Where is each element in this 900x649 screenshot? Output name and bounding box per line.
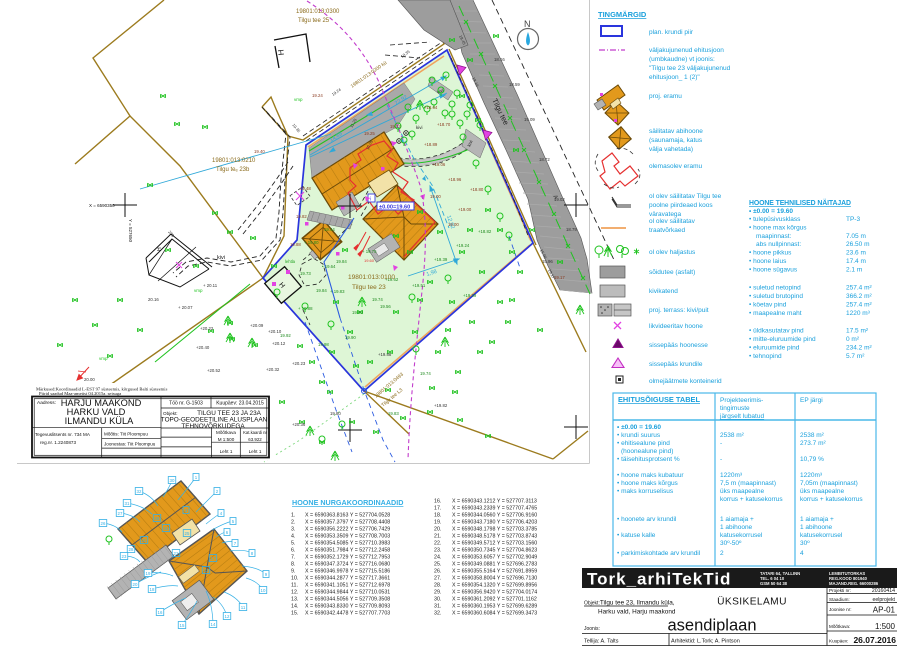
svg-text:ol olev säilitatav: ol olev säilitatav bbox=[649, 218, 696, 225]
svg-text:Tilgu tee 23: Tilgu tee 23 bbox=[352, 284, 386, 291]
svg-text:19.74: 19.74 bbox=[372, 297, 383, 302]
svg-text:16: 16 bbox=[158, 610, 163, 615]
svg-text:+18.82: +18.82 bbox=[478, 229, 492, 234]
svg-text:15.: 15. bbox=[291, 611, 298, 617]
svg-text:• ehitisealune pind: • ehitisealune pind bbox=[617, 440, 670, 447]
svg-text:29: 29 bbox=[155, 516, 160, 521]
svg-text:+19.24: +19.24 bbox=[456, 243, 470, 248]
svg-text:1220m³: 1220m³ bbox=[800, 472, 823, 479]
svg-text:26.50 m: 26.50 m bbox=[846, 241, 870, 248]
svg-text:31: 31 bbox=[125, 501, 130, 506]
svg-text:7.: 7. bbox=[291, 555, 295, 561]
svg-text:X = 6590342.4478 Y = 527707.7: X = 6590342.4478 Y = 527707.7703 bbox=[305, 611, 390, 617]
svg-text:2.: 2. bbox=[291, 520, 295, 526]
svg-text:2538 m²: 2538 m² bbox=[720, 432, 745, 439]
svg-text:• hoonete arv krundil: • hoonete arv krundil bbox=[617, 516, 677, 523]
svg-text:X = 6590349.0881 Y = 527696.2: X = 6590349.0881 Y = 527696.2783 bbox=[452, 562, 537, 568]
svg-text:Tellija: A. Talts: Tellija: A. Talts bbox=[584, 639, 619, 645]
svg-text:20160414: 20160414 bbox=[872, 588, 895, 594]
svg-text:asendiplaan: asendiplaan bbox=[668, 617, 757, 635]
svg-text:vmp: vmp bbox=[294, 97, 303, 102]
svg-text:19.80: 19.80 bbox=[330, 411, 341, 416]
svg-text:2: 2 bbox=[720, 550, 724, 557]
svg-text:+18.64: +18.64 bbox=[424, 105, 438, 110]
svg-text:abs nullpinnast:: abs nullpinnast: bbox=[756, 241, 801, 248]
svg-text:ÜKSIKELAMU: ÜKSIKELAMU bbox=[717, 596, 787, 608]
svg-text:+19.39: +19.39 bbox=[434, 257, 448, 262]
svg-text:12.: 12. bbox=[291, 590, 298, 596]
svg-text:+ 19.75: + 19.75 bbox=[362, 249, 377, 254]
svg-text:19: 19 bbox=[146, 571, 151, 576]
svg-text:2538 m²: 2538 m² bbox=[800, 432, 825, 439]
svg-text:X = 6590346.9978 Y = 527715.5: X = 6590346.9978 Y = 527715.5186 bbox=[305, 569, 390, 575]
svg-text:X = 6590355.5164 Y = 527691.8: X = 6590355.5164 Y = 527691.8959 bbox=[452, 569, 537, 575]
svg-text:X = 6590352.1729 Y = 527712.7: X = 6590352.1729 Y = 527712.7953 bbox=[305, 555, 390, 561]
svg-text:väravatega: väravatega bbox=[649, 211, 682, 218]
svg-text:+20.40: +20.40 bbox=[196, 345, 210, 350]
svg-text:EP järgi: EP järgi bbox=[800, 397, 823, 404]
svg-text:katusekorrusel: katusekorrusel bbox=[720, 532, 763, 539]
svg-text:järgselt lubatud: järgselt lubatud bbox=[719, 413, 764, 420]
svg-text:X = 6590344.9844 Y = 527710.0: X = 6590344.9844 Y = 527710.0531 bbox=[305, 590, 390, 596]
svg-text:TP-3: TP-3 bbox=[846, 216, 860, 223]
svg-text:19.60: 19.60 bbox=[364, 258, 375, 263]
svg-text:5.7 m²: 5.7 m² bbox=[846, 353, 865, 360]
svg-text:19.: 19. bbox=[434, 520, 441, 526]
svg-text:Objekt:Tilgu tee 23, Ilmandu k: Objekt:Tilgu tee 23, Ilmandu küla, bbox=[584, 600, 675, 607]
svg-text:7,5 m (maapinnast): 7,5 m (maapinnast) bbox=[720, 480, 776, 487]
svg-text:30º-50º: 30º-50º bbox=[720, 540, 742, 547]
svg-text:10,79 %: 10,79 % bbox=[800, 456, 824, 463]
svg-text:19.35: 19.35 bbox=[291, 122, 302, 133]
svg-text:+ 20.11: + 20.11 bbox=[203, 283, 218, 288]
svg-text:X = 6590344.0560 Y = 527706.9: X = 6590344.0560 Y = 527706.9160 bbox=[452, 513, 537, 519]
svg-text:63.922: 63.922 bbox=[248, 437, 262, 442]
svg-text:X = 6590360.1953 Y = 527699.6: X = 6590360.1953 Y = 527699.6289 bbox=[452, 604, 537, 610]
svg-text:+19.00: +19.00 bbox=[458, 207, 472, 212]
svg-text:-: - bbox=[720, 440, 722, 447]
svg-text:Objekt:: Objekt: bbox=[163, 411, 178, 416]
svg-text:14.: 14. bbox=[291, 604, 298, 610]
svg-text:Aadress:: Aadress: bbox=[37, 400, 56, 406]
svg-text:6.: 6. bbox=[291, 548, 295, 554]
svg-text:27.: 27. bbox=[434, 576, 441, 582]
svg-text:Joonestas: Tiit Ploompuu: Joonestas: Tiit Ploompuu bbox=[104, 441, 156, 446]
svg-text:+20.12: +20.12 bbox=[272, 341, 286, 346]
svg-text:korrus + katusekorrus: korrus + katusekorrus bbox=[800, 496, 863, 503]
svg-text:+18.96: +18.96 bbox=[448, 177, 462, 182]
svg-text:19801:013:0300: 19801:013:0300 bbox=[296, 9, 340, 15]
svg-text:X = 6590357.3797 Y = 527708.4: X = 6590357.3797 Y = 527708.4408 bbox=[305, 520, 390, 526]
svg-text:välja vahetada): välja vahetada) bbox=[649, 146, 693, 153]
svg-text:X = 6590350.7345 Y = 527704.8: X = 6590350.7345 Y = 527704.8623 bbox=[452, 548, 537, 554]
svg-text:23: 23 bbox=[122, 554, 127, 559]
svg-text:vmp: vmp bbox=[99, 356, 108, 361]
svg-text:Tork_arhiTekTid: Tork_arhiTekTid bbox=[587, 570, 731, 589]
svg-text:1 aiamaja +: 1 aiamaja + bbox=[720, 516, 754, 523]
svg-text:X = 6590350: X = 6590350 bbox=[89, 203, 115, 208]
svg-text:"Tilgu tee 23 väljakujunenud: "Tilgu tee 23 väljakujunenud bbox=[649, 65, 731, 72]
svg-text:17.4 m: 17.4 m bbox=[846, 258, 866, 265]
svg-text:+ 19.80: + 19.80 bbox=[304, 240, 319, 245]
svg-text:±0.00=19.60: ±0.00=19.60 bbox=[379, 204, 410, 210]
svg-text:katusekorrusel: katusekorrusel bbox=[800, 532, 843, 539]
svg-text:X = 6590343.1212 Y = 527707.3: X = 6590343.1212 Y = 527707.3113 bbox=[452, 499, 537, 505]
svg-text:23.: 23. bbox=[434, 548, 441, 554]
svg-text:üks maapealne: üks maapealne bbox=[720, 488, 764, 495]
svg-text:20.16: 20.16 bbox=[148, 297, 159, 302]
svg-text:kivikatend: kivikatend bbox=[649, 288, 678, 295]
svg-text:19.12: 19.12 bbox=[390, 124, 401, 129]
svg-text:eelprojekt: eelprojekt bbox=[873, 597, 896, 603]
svg-text:10.: 10. bbox=[291, 576, 298, 582]
svg-text:19.24: 19.24 bbox=[331, 87, 343, 97]
svg-text:19.74: 19.74 bbox=[420, 371, 431, 376]
svg-text:sissepääs krundile: sissepääs krundile bbox=[649, 361, 703, 368]
svg-text:MAJAND.REG. 66000286: MAJAND.REG. 66000286 bbox=[829, 581, 879, 586]
svg-text:+19.39: +19.39 bbox=[463, 293, 477, 298]
svg-text:2.1 m: 2.1 m bbox=[846, 267, 862, 274]
svg-text:19.88: 19.88 bbox=[290, 242, 301, 247]
svg-text:Tilgu tee 25: Tilgu tee 25 bbox=[298, 18, 330, 24]
svg-text:8.: 8. bbox=[291, 562, 295, 568]
svg-text:32: 32 bbox=[137, 489, 142, 494]
svg-text:X = 6590344.2877 Y = 527717.3: X = 6590344.2877 Y = 527717.3661 bbox=[305, 576, 390, 582]
svg-text:4.: 4. bbox=[291, 534, 295, 540]
svg-text:X = 6590349.5712 Y = 527703.1: X = 6590349.5712 Y = 527703.1560 bbox=[452, 541, 537, 547]
svg-text:(saunamaja, katus: (saunamaja, katus bbox=[649, 137, 703, 144]
svg-text:+ 20.07: + 20.07 bbox=[178, 305, 193, 310]
svg-text:1220 m³: 1220 m³ bbox=[846, 310, 871, 317]
svg-text:1:500: 1:500 bbox=[875, 622, 896, 631]
svg-text:ehitusjoon_ 1 (2)": ehitusjoon_ 1 (2)" bbox=[649, 74, 700, 81]
svg-text:Joonis:: Joonis: bbox=[584, 626, 600, 632]
svg-text:32.: 32. bbox=[434, 611, 441, 617]
svg-text:X = 6590356.9420 Y = 527704.0: X = 6590356.9420 Y = 527704.0174 bbox=[452, 590, 537, 596]
svg-text:vmp: vmp bbox=[194, 288, 203, 293]
svg-text:Tilgu teₑ 23b: Tilgu teₑ 23b bbox=[216, 167, 250, 173]
svg-text:üks maapealne: üks maapealne bbox=[800, 488, 844, 495]
svg-text:X = 6590343.8330 Y = 527709.8: X = 6590343.8330 Y = 527709.8093 bbox=[305, 604, 390, 610]
svg-text:19.90: 19.90 bbox=[345, 335, 356, 340]
svg-text:19801:013:0210: 19801:013:0210 bbox=[212, 158, 256, 164]
svg-text:10: 10 bbox=[261, 588, 266, 593]
svg-text:olemasolev eramu: olemasolev eramu bbox=[649, 163, 702, 170]
svg-text:24: 24 bbox=[164, 526, 169, 531]
svg-text:+18.80: +18.80 bbox=[470, 187, 484, 192]
svg-text:proj. eramu: proj. eramu bbox=[649, 93, 682, 100]
svg-text:proj. terrass: kivi/puit: proj. terrass: kivi/puit bbox=[649, 307, 709, 314]
svg-text:• ±0.00 = 19.60: • ±0.00 = 19.60 bbox=[749, 208, 793, 215]
svg-text:234.2 m²: 234.2 m² bbox=[846, 345, 872, 352]
svg-text:27: 27 bbox=[118, 511, 123, 516]
svg-text:273.7 m²: 273.7 m² bbox=[800, 440, 826, 447]
svg-text:• suletud netopind: • suletud netopind bbox=[749, 285, 801, 292]
svg-text:7.05 m: 7.05 m bbox=[846, 233, 866, 240]
svg-text:+20.23: +20.23 bbox=[292, 361, 306, 366]
svg-text:Piirid saadud Maa-ametist 04.2: Piirid saadud Maa-ametist 04.2015a. seis… bbox=[39, 391, 121, 396]
svg-text:18.16: 18.16 bbox=[494, 57, 505, 62]
svg-text:Y = 527650: Y = 527650 bbox=[128, 219, 133, 243]
svg-text:19.84: 19.84 bbox=[316, 288, 327, 293]
svg-text:Projekteerimis-: Projekteerimis- bbox=[720, 397, 763, 404]
svg-text:+18.89: +18.89 bbox=[424, 142, 438, 147]
svg-text:X = 6590353.3509 Y = 527708.7: X = 6590353.3509 Y = 527708.7003 bbox=[305, 534, 390, 540]
svg-text:1 abihoone: 1 abihoone bbox=[800, 524, 833, 531]
svg-text:1 aiamaja +: 1 aiamaja + bbox=[800, 516, 834, 523]
svg-text:H: H bbox=[157, 247, 163, 251]
svg-text:• parkimiskohtade arv krundil: • parkimiskohtade arv krundil bbox=[617, 550, 701, 557]
svg-text:19.98: 19.98 bbox=[318, 342, 329, 347]
svg-text:Töö nr. G-1503: Töö nr. G-1503 bbox=[169, 401, 203, 407]
svg-text:sissepääs hoonesse: sissepääs hoonesse bbox=[649, 342, 708, 349]
svg-text:18.72: 18.72 bbox=[539, 157, 550, 162]
svg-text:26.07.2016: 26.07.2016 bbox=[853, 635, 896, 645]
svg-text:X = 6590351.7984 Y = 527712.2: X = 6590351.7984 Y = 527712.2458 bbox=[305, 548, 390, 554]
svg-text:X = 6590360.6084 Y = 527699.3: X = 6590360.6084 Y = 527699.3473 bbox=[452, 611, 537, 617]
svg-text:(umbkaudne) vt joonis:: (umbkaudne) vt joonis: bbox=[649, 56, 715, 63]
svg-text:3.: 3. bbox=[291, 527, 295, 533]
svg-text:25.: 25. bbox=[434, 562, 441, 568]
svg-text:19.73: 19.73 bbox=[300, 271, 311, 276]
svg-text:19801:013:0100: 19801:013:0100 bbox=[348, 274, 395, 281]
svg-text:X = 6590363.8163 Y = 527704.0: X = 6590363.8163 Y = 527704.0528 bbox=[305, 513, 390, 519]
svg-text:19.24: 19.24 bbox=[312, 93, 323, 98]
svg-text:257.4 m²: 257.4 m² bbox=[846, 285, 872, 292]
svg-text:HOONE NURGAKOORDINAADID: HOONE NURGAKOORDINAADID bbox=[292, 498, 403, 507]
svg-text:X = 6590348.5178 Y = 527703.8: X = 6590348.5178 Y = 527703.8743 bbox=[452, 534, 537, 540]
svg-text:• hoone maks kõrgus: • hoone maks kõrgus bbox=[617, 480, 679, 487]
svg-text:20: 20 bbox=[133, 582, 138, 587]
svg-text:X = 6590354.5085 Y = 527710.3: X = 6590354.5085 Y = 527710.3983 bbox=[305, 541, 390, 547]
svg-text:lehtla: lehtla bbox=[285, 259, 296, 264]
svg-text:reg.nr. 1.2240873: reg.nr. 1.2240873 bbox=[40, 440, 76, 445]
svg-text:X = 6590348.1798 Y = 527703.3: X = 6590348.1798 Y = 527703.3785 bbox=[452, 527, 537, 533]
svg-text:23.6 m: 23.6 m bbox=[846, 250, 866, 257]
svg-text:19.25: 19.25 bbox=[364, 131, 375, 136]
svg-text:15.96: 15.96 bbox=[542, 259, 553, 264]
svg-text:19.83: 19.83 bbox=[388, 411, 399, 416]
svg-text:17.: 17. bbox=[434, 506, 441, 512]
svg-text:• krundi suurus: • krundi suurus bbox=[617, 432, 661, 439]
svg-text:19.80: 19.80 bbox=[352, 310, 363, 315]
svg-text:TEHNOVÕRKUDEGA: TEHNOVÕRKUDEGA bbox=[181, 421, 245, 430]
svg-text:• hoone maks kubatuur: • hoone maks kubatuur bbox=[617, 472, 684, 479]
svg-text:Arhitektid: L.Tork; A. Pintso: Arhitektid: L.Tork; A. Pintson bbox=[671, 639, 740, 645]
svg-text:-: - bbox=[720, 456, 722, 463]
svg-text:+19.06: +19.06 bbox=[432, 162, 446, 167]
svg-text:30: 30 bbox=[170, 478, 175, 483]
svg-text:21.: 21. bbox=[434, 534, 441, 540]
svg-text:26: 26 bbox=[101, 521, 106, 526]
svg-text:TINGMÄRGID: TINGMÄRGID bbox=[598, 10, 647, 19]
svg-text:Leht 1: Leht 1 bbox=[249, 449, 262, 454]
svg-text:plan. krundi piir: plan. krundi piir bbox=[649, 29, 694, 36]
svg-text:+20.09: +20.09 bbox=[250, 323, 264, 328]
svg-text:16.: 16. bbox=[434, 499, 441, 505]
svg-text:Kuupäev: 23.04.2015: Kuupäev: 23.04.2015 bbox=[216, 401, 264, 407]
svg-text:• hoone max kõrgus: • hoone max kõrgus bbox=[749, 225, 807, 232]
svg-text:19.84: 19.84 bbox=[336, 259, 347, 264]
svg-text:19.56: 19.56 bbox=[380, 304, 391, 309]
svg-text:+20.52: +20.52 bbox=[207, 368, 221, 373]
svg-text:17: 17 bbox=[211, 556, 216, 561]
svg-text:H: H bbox=[276, 49, 286, 56]
svg-text:• hoone sügavus: • hoone sügavus bbox=[749, 267, 798, 274]
svg-text:• 19.64: • 19.64 bbox=[322, 264, 336, 269]
svg-text:22: 22 bbox=[174, 551, 179, 556]
svg-text:EHITUSÕIGUSE TABEL: EHITUSÕIGUSE TABEL bbox=[618, 395, 700, 404]
svg-text:26.: 26. bbox=[434, 569, 441, 575]
svg-text:20.00: 20.00 bbox=[84, 377, 95, 382]
svg-text:1220m³: 1220m³ bbox=[720, 472, 743, 479]
svg-text:traatvõrkaed: traatvõrkaed bbox=[649, 227, 686, 234]
svg-text:19.82: 19.82 bbox=[296, 214, 307, 219]
svg-text:9.: 9. bbox=[291, 569, 295, 575]
svg-text:tingimuste: tingimuste bbox=[720, 405, 750, 412]
svg-text:Mõõtkava: Mõõtkava bbox=[216, 430, 236, 435]
svg-text:19.02: 19.02 bbox=[554, 197, 565, 202]
svg-text:11: 11 bbox=[241, 605, 246, 610]
svg-text:ILMANDU KÜLA: ILMANDU KÜLA bbox=[65, 416, 135, 426]
svg-text:19.00: 19.00 bbox=[430, 194, 441, 199]
svg-text:Joonise nr:: Joonise nr: bbox=[829, 607, 851, 612]
svg-text:Leht 1: Leht 1 bbox=[220, 449, 233, 454]
svg-text:sõidutee (asfalt): sõidutee (asfalt) bbox=[649, 269, 695, 276]
svg-text:GSM 50 64 38: GSM 50 64 38 bbox=[760, 581, 788, 586]
svg-text:+20.22: +20.22 bbox=[200, 326, 214, 331]
svg-text:18: 18 bbox=[150, 587, 155, 592]
svg-text:17.5 m²: 17.5 m² bbox=[846, 328, 869, 335]
svg-text:+19.82: +19.82 bbox=[434, 403, 448, 408]
svg-text:• suletud brutopind: • suletud brutopind bbox=[749, 293, 803, 300]
svg-text:Staadium:: Staadium: bbox=[829, 597, 850, 602]
svg-text:+20.32: +20.32 bbox=[266, 367, 280, 372]
svg-text:ol olev haljastus: ol olev haljastus bbox=[649, 249, 696, 256]
svg-text:X = 6590344.5056 Y = 527709.3: X = 6590344.5056 Y = 527709.3508 bbox=[305, 597, 390, 603]
svg-text:X = 6590347.3724 Y = 527716.0: X = 6590347.3724 Y = 527716.0680 bbox=[305, 562, 390, 568]
svg-text:15: 15 bbox=[180, 623, 185, 628]
svg-text:ol olev säilitatav Tilgu tee: ol olev säilitatav Tilgu tee bbox=[649, 193, 722, 200]
svg-text:19.92: 19.92 bbox=[280, 333, 291, 338]
svg-text:30º: 30º bbox=[800, 540, 810, 547]
svg-text:X = 6590353.6057 Y = 527702.9: X = 6590353.6057 Y = 527702.9049 bbox=[452, 555, 537, 561]
svg-text:19.40: 19.40 bbox=[254, 149, 265, 154]
svg-text:366.2 m²: 366.2 m² bbox=[846, 293, 872, 300]
svg-text:olmejäätmete konteinerid: olmejäätmete konteinerid bbox=[649, 378, 722, 385]
svg-text:maapinnast:: maapinnast: bbox=[756, 233, 792, 240]
svg-text:X = 6590341.1051 Y = 527712.6: X = 6590341.1051 Y = 527712.6978 bbox=[305, 583, 390, 589]
svg-text:13.: 13. bbox=[291, 597, 298, 603]
svg-text:Mõõtkava:: Mõõtkava: bbox=[829, 624, 850, 629]
svg-text:• köetav pind: • köetav pind bbox=[749, 302, 787, 309]
svg-text:11.: 11. bbox=[291, 583, 298, 589]
svg-text:1 abihoone: 1 abihoone bbox=[720, 524, 753, 531]
svg-text:korrus + katusekorrus: korrus + katusekorrus bbox=[720, 496, 783, 503]
svg-text:X = 6590354.1320 Y = 527699.8: X = 6590354.1320 Y = 527699.8956 bbox=[452, 583, 537, 589]
svg-text:Kuupäev:: Kuupäev: bbox=[829, 639, 848, 644]
svg-text:12: 12 bbox=[225, 614, 230, 619]
svg-text:0 m²: 0 m² bbox=[846, 336, 860, 343]
svg-text:Harku vald, Harju maakond: Harku vald, Harju maakond bbox=[598, 609, 676, 616]
svg-text:X = 6590343.2339 Y = 527707.4: X = 6590343.2339 Y = 527707.4765 bbox=[452, 506, 537, 512]
svg-text:19.48: 19.48 bbox=[300, 186, 311, 191]
svg-text:• tulepüsivusklass: • tulepüsivusklass bbox=[749, 216, 801, 223]
svg-text:20.: 20. bbox=[434, 527, 441, 533]
svg-text:24.: 24. bbox=[434, 555, 441, 561]
svg-text:kivi: kivi bbox=[416, 125, 423, 130]
svg-text:i: i bbox=[370, 197, 371, 203]
svg-text:• hoone pikkus: • hoone pikkus bbox=[749, 250, 792, 257]
svg-text:• eluruumide pind: • eluruumide pind bbox=[749, 345, 800, 352]
svg-text:14: 14 bbox=[211, 622, 216, 627]
svg-text:kivi: kivi bbox=[217, 255, 225, 261]
svg-text:18.: 18. bbox=[434, 513, 441, 519]
svg-text:7,05m (maapinnast): 7,05m (maapinnast) bbox=[800, 480, 858, 487]
svg-text:28: 28 bbox=[129, 547, 134, 552]
svg-text:Tegevuslitsents nr. 734 MA: Tegevuslitsents nr. 734 MA bbox=[35, 432, 91, 437]
svg-text:poolne piirdeaed koos: poolne piirdeaed koos bbox=[649, 202, 713, 209]
svg-text:• üldkasutatav pind: • üldkasutatav pind bbox=[749, 328, 804, 335]
svg-text:• maks korruselisus: • maks korruselisus bbox=[617, 488, 674, 495]
svg-text:• hoone laius: • hoone laius bbox=[749, 258, 787, 265]
svg-text:X = 6590358.8004 Y = 527696.7: X = 6590358.8004 Y = 527696.7130 bbox=[452, 576, 537, 582]
svg-text:• katuse kalle: • katuse kalle bbox=[617, 532, 656, 539]
svg-text:säilitatav abihoone: säilitatav abihoone bbox=[649, 128, 703, 135]
svg-text:+20.36: +20.36 bbox=[292, 422, 306, 427]
svg-text:• täisehitusprotsent %: • täisehitusprotsent % bbox=[617, 456, 680, 463]
svg-text:18.59: 18.59 bbox=[509, 82, 520, 87]
svg-text:väljakujunenud ehitusjoon: väljakujunenud ehitusjoon bbox=[649, 47, 724, 54]
svg-text:21: 21 bbox=[142, 538, 147, 543]
svg-text:31.: 31. bbox=[434, 604, 441, 610]
svg-text:18.79: 18.79 bbox=[566, 227, 577, 232]
svg-text:+19.51: +19.51 bbox=[412, 283, 426, 288]
svg-text:M 1:500: M 1:500 bbox=[218, 437, 235, 442]
svg-text:(hoonealune pind): (hoonealune pind) bbox=[621, 448, 673, 455]
svg-text:Projekti nr:: Projekti nr: bbox=[829, 588, 851, 593]
svg-text:22.: 22. bbox=[434, 541, 441, 547]
svg-text:Kat.kaardi nr: Kat.kaardi nr bbox=[243, 430, 267, 435]
svg-text:18.00: 18.00 bbox=[448, 222, 459, 227]
svg-text:+ 19.83: + 19.83 bbox=[330, 289, 345, 294]
svg-text:30.: 30. bbox=[434, 597, 441, 603]
svg-text:+19.88: +19.88 bbox=[378, 352, 392, 357]
svg-text:HOONE TEHNILISED NÄITAJAD: HOONE TEHNILISED NÄITAJAD bbox=[749, 199, 851, 207]
svg-text:• tehnopind: • tehnopind bbox=[749, 353, 782, 360]
svg-text:13: 13 bbox=[204, 568, 209, 573]
svg-text:19.09: 19.09 bbox=[524, 117, 535, 122]
svg-text:4: 4 bbox=[800, 550, 804, 557]
svg-text:likvideeritav hoone: likvideeritav hoone bbox=[649, 323, 703, 330]
svg-text:28.: 28. bbox=[434, 583, 441, 589]
svg-text:29.: 29. bbox=[434, 590, 441, 596]
svg-text:Mõõtis: Tiit Ploompuu: Mõõtis: Tiit Ploompuu bbox=[104, 431, 148, 436]
svg-text:1.: 1. bbox=[291, 513, 295, 519]
svg-text:19.44: 19.44 bbox=[324, 227, 335, 232]
svg-text:N: N bbox=[524, 19, 531, 29]
svg-text:5.: 5. bbox=[291, 541, 295, 547]
svg-text:• maapealne maht: • maapealne maht bbox=[749, 310, 802, 317]
svg-text:25: 25 bbox=[185, 531, 190, 536]
svg-text:257.4 m²: 257.4 m² bbox=[846, 302, 872, 309]
svg-text:X = 6590356.2222 Y = 527706.7: X = 6590356.2222 Y = 527706.7429 bbox=[305, 527, 390, 533]
svg-text:X = 6590343.7180 Y = 527706.4: X = 6590343.7180 Y = 527706.4203 bbox=[452, 520, 537, 526]
svg-text:• mitte-eluruumide pind: • mitte-eluruumide pind bbox=[749, 336, 816, 343]
svg-text:+ 19.88: + 19.88 bbox=[298, 306, 313, 311]
svg-text:AP-01: AP-01 bbox=[873, 606, 896, 615]
svg-text:• ±0.00 = 19.60: • ±0.00 = 19.60 bbox=[617, 424, 661, 431]
